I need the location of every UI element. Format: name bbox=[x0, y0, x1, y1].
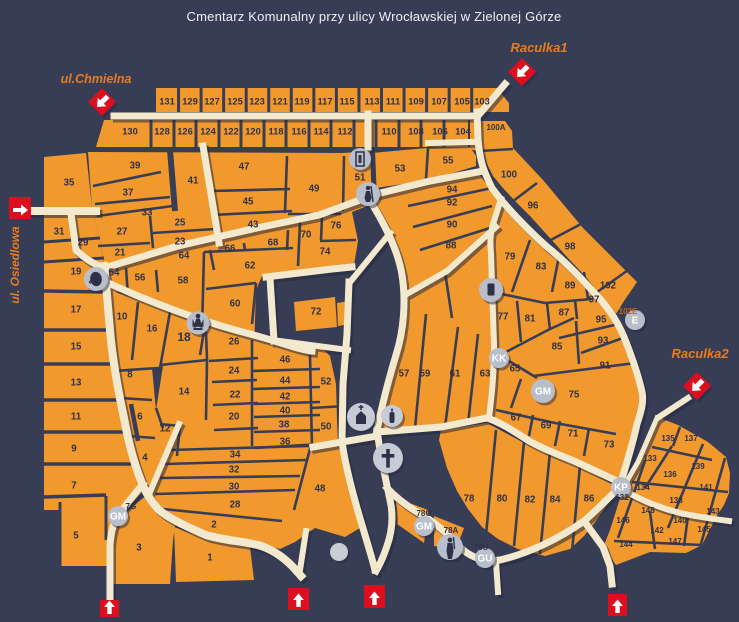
svg-text:120: 120 bbox=[245, 126, 261, 136]
svg-text:11: 11 bbox=[71, 411, 82, 422]
svg-text:18: 18 bbox=[177, 330, 191, 344]
svg-text:39: 39 bbox=[130, 160, 141, 171]
svg-text:139: 139 bbox=[691, 462, 705, 471]
svg-text:82: 82 bbox=[525, 494, 536, 505]
svg-text:56: 56 bbox=[135, 272, 146, 283]
svg-text:124: 124 bbox=[200, 126, 216, 136]
svg-text:142: 142 bbox=[650, 526, 664, 535]
svg-text:94: 94 bbox=[447, 184, 458, 195]
svg-text:106: 106 bbox=[432, 126, 448, 136]
svg-text:110: 110 bbox=[382, 126, 397, 136]
svg-text:95: 95 bbox=[596, 314, 607, 325]
svg-text:GU: GU bbox=[478, 554, 493, 565]
svg-text:83: 83 bbox=[536, 261, 547, 272]
svg-text:68: 68 bbox=[268, 237, 279, 248]
svg-text:33: 33 bbox=[142, 207, 153, 218]
svg-text:128: 128 bbox=[154, 126, 170, 136]
svg-text:131: 131 bbox=[159, 96, 175, 106]
svg-text:103: 103 bbox=[474, 96, 490, 106]
svg-text:1: 1 bbox=[207, 552, 213, 563]
svg-text:112: 112 bbox=[338, 126, 353, 136]
svg-text:6: 6 bbox=[137, 411, 143, 422]
svg-text:23: 23 bbox=[175, 236, 186, 247]
svg-text:117: 117 bbox=[318, 96, 333, 106]
svg-text:138: 138 bbox=[669, 496, 683, 505]
svg-text:137: 137 bbox=[684, 434, 698, 443]
svg-text:37: 37 bbox=[123, 187, 134, 198]
svg-text:58: 58 bbox=[178, 275, 189, 286]
svg-text:85: 85 bbox=[552, 341, 563, 352]
svg-text:51: 51 bbox=[355, 172, 366, 183]
svg-text:111: 111 bbox=[386, 96, 401, 106]
svg-text:29: 29 bbox=[78, 237, 89, 248]
svg-text:63: 63 bbox=[480, 368, 491, 379]
svg-text:115: 115 bbox=[340, 96, 355, 106]
svg-text:5: 5 bbox=[73, 530, 79, 541]
svg-text:89: 89 bbox=[565, 280, 576, 291]
svg-text:Cmentarz Komunalny przy ulicy: Cmentarz Komunalny przy ulicy Wrocławski… bbox=[187, 9, 562, 24]
svg-text:135: 135 bbox=[661, 434, 675, 443]
svg-text:8: 8 bbox=[127, 369, 133, 380]
svg-text:9: 9 bbox=[71, 443, 77, 454]
svg-text:121: 121 bbox=[272, 96, 288, 106]
svg-text:Raculka2: Raculka2 bbox=[671, 346, 729, 361]
svg-text:134: 134 bbox=[636, 483, 650, 492]
svg-text:2: 2 bbox=[211, 519, 216, 530]
svg-text:44: 44 bbox=[280, 375, 291, 386]
svg-text:40: 40 bbox=[280, 405, 291, 416]
svg-text:30: 30 bbox=[229, 481, 240, 492]
svg-text:86: 86 bbox=[584, 493, 595, 504]
svg-text:109: 109 bbox=[408, 96, 424, 106]
svg-text:41: 41 bbox=[188, 175, 199, 186]
svg-text:59: 59 bbox=[420, 368, 431, 379]
svg-text:123: 123 bbox=[249, 96, 265, 106]
svg-text:84: 84 bbox=[550, 494, 561, 505]
svg-text:146: 146 bbox=[616, 516, 630, 525]
svg-text:72: 72 bbox=[311, 306, 322, 317]
svg-text:22: 22 bbox=[230, 389, 241, 400]
svg-text:80: 80 bbox=[497, 493, 508, 504]
svg-text:45: 45 bbox=[243, 196, 254, 207]
svg-text:78A: 78A bbox=[444, 526, 459, 535]
svg-text:100: 100 bbox=[501, 169, 517, 180]
svg-text:145: 145 bbox=[697, 525, 711, 534]
svg-text:46: 46 bbox=[280, 354, 291, 365]
svg-text:113: 113 bbox=[365, 96, 380, 106]
svg-text:143: 143 bbox=[706, 507, 720, 516]
svg-text:144: 144 bbox=[619, 540, 633, 549]
svg-text:53: 53 bbox=[395, 163, 406, 174]
svg-text:61: 61 bbox=[450, 368, 461, 379]
svg-text:132: 132 bbox=[615, 493, 629, 502]
svg-text:25: 25 bbox=[175, 217, 186, 228]
svg-text:50: 50 bbox=[321, 421, 332, 432]
svg-text:42: 42 bbox=[280, 391, 291, 402]
svg-text:136: 136 bbox=[663, 470, 677, 479]
svg-text:102E: 102E bbox=[619, 307, 638, 316]
svg-text:31: 31 bbox=[54, 226, 65, 237]
svg-text:93: 93 bbox=[598, 335, 609, 346]
svg-text:79: 79 bbox=[505, 251, 516, 262]
svg-text:97: 97 bbox=[589, 294, 600, 305]
svg-text:148: 148 bbox=[641, 506, 655, 515]
svg-text:12: 12 bbox=[160, 423, 171, 434]
svg-text:7: 7 bbox=[71, 480, 76, 491]
svg-text:20: 20 bbox=[229, 411, 240, 422]
svg-text:ul. Osiedlowa: ul. Osiedlowa bbox=[8, 226, 22, 304]
svg-text:81: 81 bbox=[525, 313, 536, 324]
svg-text:13: 13 bbox=[71, 377, 82, 388]
svg-text:65: 65 bbox=[510, 363, 521, 374]
svg-text:67: 67 bbox=[511, 412, 522, 423]
svg-text:140: 140 bbox=[673, 516, 687, 525]
svg-text:47: 47 bbox=[239, 161, 250, 172]
svg-text:78G: 78G bbox=[416, 509, 431, 518]
svg-text:104: 104 bbox=[455, 126, 471, 136]
svg-text:10: 10 bbox=[117, 311, 128, 322]
svg-text:77: 77 bbox=[498, 311, 509, 322]
svg-text:55: 55 bbox=[443, 155, 454, 166]
svg-text:122: 122 bbox=[223, 126, 239, 136]
svg-text:107: 107 bbox=[431, 96, 447, 106]
svg-text:GM: GM bbox=[416, 522, 432, 533]
svg-text:119: 119 bbox=[295, 96, 310, 106]
svg-text:98: 98 bbox=[565, 241, 576, 252]
svg-text:57: 57 bbox=[399, 368, 410, 379]
svg-text:108: 108 bbox=[408, 126, 424, 136]
svg-text:34: 34 bbox=[230, 449, 241, 460]
svg-text:64: 64 bbox=[179, 250, 190, 261]
svg-text:35: 35 bbox=[64, 177, 75, 188]
svg-text:43: 43 bbox=[248, 219, 259, 230]
svg-text:96: 96 bbox=[528, 200, 539, 211]
svg-text:133: 133 bbox=[643, 454, 657, 463]
svg-text:19: 19 bbox=[71, 266, 82, 277]
svg-text:24: 24 bbox=[229, 365, 240, 376]
svg-text:36: 36 bbox=[280, 436, 291, 447]
svg-text:127: 127 bbox=[204, 96, 220, 106]
svg-text:38: 38 bbox=[279, 419, 290, 430]
svg-text:116: 116 bbox=[292, 126, 307, 136]
svg-text:105: 105 bbox=[454, 96, 470, 106]
svg-text:GM: GM bbox=[110, 512, 126, 523]
svg-text:76: 76 bbox=[331, 220, 342, 231]
svg-text:147: 147 bbox=[668, 537, 682, 546]
svg-text:14: 14 bbox=[179, 386, 190, 397]
svg-text:4: 4 bbox=[142, 452, 148, 463]
svg-text:102: 102 bbox=[600, 280, 616, 291]
svg-text:66: 66 bbox=[225, 243, 236, 254]
svg-text:73: 73 bbox=[604, 439, 615, 450]
svg-text:28: 28 bbox=[230, 499, 241, 510]
svg-text:75: 75 bbox=[569, 389, 580, 400]
svg-text:74: 74 bbox=[320, 246, 331, 257]
svg-text:90: 90 bbox=[447, 219, 458, 230]
svg-text:3: 3 bbox=[136, 542, 142, 553]
svg-text:GM: GM bbox=[535, 387, 551, 398]
svg-text:118: 118 bbox=[269, 126, 284, 136]
svg-text:60: 60 bbox=[230, 298, 241, 309]
svg-text:16: 16 bbox=[147, 323, 158, 334]
svg-text:49: 49 bbox=[309, 183, 320, 194]
svg-text:17: 17 bbox=[71, 304, 82, 315]
svg-text:26: 26 bbox=[229, 336, 240, 347]
svg-text:78: 78 bbox=[464, 493, 475, 504]
svg-text:21: 21 bbox=[115, 247, 126, 258]
svg-text:88: 88 bbox=[446, 240, 457, 251]
svg-text:69: 69 bbox=[541, 420, 552, 431]
svg-text:ul.Chmielna: ul.Chmielna bbox=[61, 72, 132, 86]
svg-text:62: 62 bbox=[245, 260, 256, 271]
svg-text:114: 114 bbox=[314, 126, 330, 136]
svg-text:100A: 100A bbox=[486, 123, 505, 132]
svg-text:126: 126 bbox=[177, 126, 193, 136]
svg-text:92: 92 bbox=[447, 197, 458, 208]
svg-text:129: 129 bbox=[182, 96, 198, 106]
svg-text:15: 15 bbox=[71, 341, 82, 352]
svg-text:130: 130 bbox=[122, 126, 138, 136]
svg-text:Raculka1: Raculka1 bbox=[510, 40, 567, 55]
svg-text:125: 125 bbox=[227, 96, 243, 106]
svg-text:71: 71 bbox=[568, 428, 579, 439]
svg-text:87: 87 bbox=[559, 307, 570, 318]
svg-text:32: 32 bbox=[229, 464, 240, 475]
svg-text:52: 52 bbox=[321, 376, 332, 387]
svg-text:78U: 78U bbox=[474, 543, 489, 552]
svg-text:54: 54 bbox=[109, 267, 120, 278]
svg-text:7G: 7G bbox=[126, 502, 137, 511]
svg-text:48: 48 bbox=[315, 483, 326, 494]
svg-text:70: 70 bbox=[301, 229, 312, 240]
svg-text:141: 141 bbox=[699, 483, 713, 492]
svg-text:27: 27 bbox=[117, 226, 128, 237]
svg-text:E: E bbox=[632, 316, 639, 327]
svg-text:KK: KK bbox=[492, 354, 507, 365]
svg-text:91: 91 bbox=[600, 360, 611, 371]
